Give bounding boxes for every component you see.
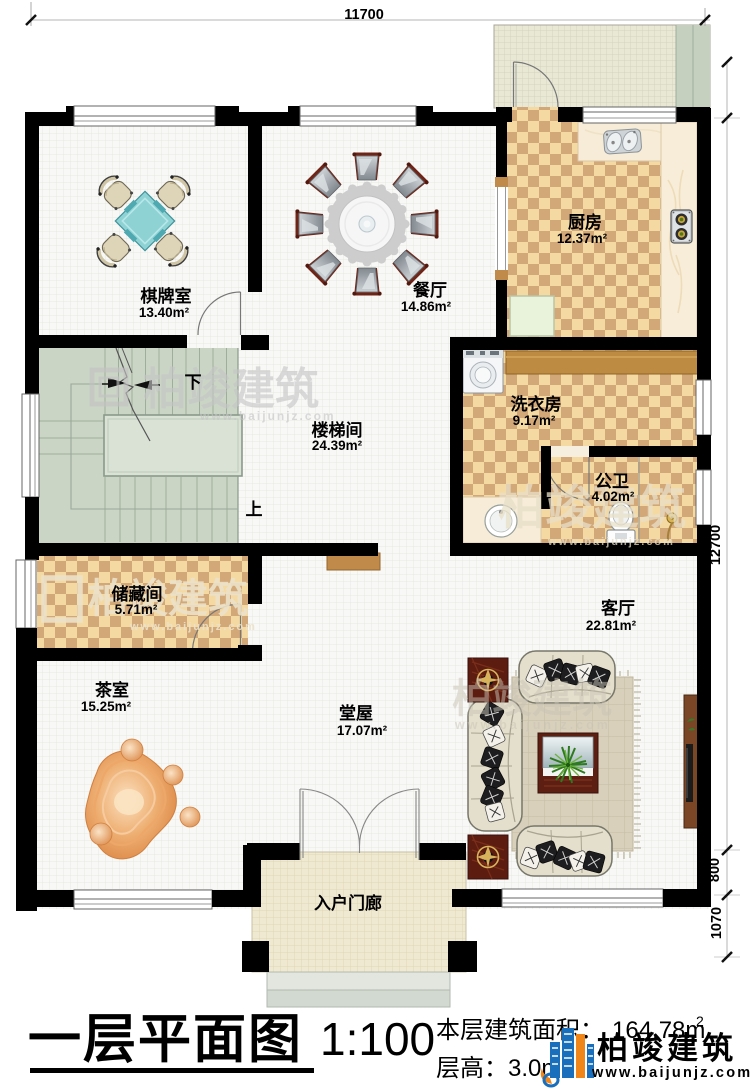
- svg-text:厨房: 厨房: [568, 212, 602, 232]
- svg-text:12700: 12700: [708, 525, 724, 565]
- svg-text:800: 800: [707, 858, 723, 882]
- svg-text:楼梯间: 楼梯间: [312, 420, 363, 440]
- svg-text:茶室: 茶室: [95, 680, 129, 700]
- svg-text:入户门廊: 入户门廊: [314, 893, 382, 913]
- svg-text:5.71m²: 5.71m²: [115, 602, 158, 617]
- svg-text:客厅: 客厅: [600, 598, 635, 618]
- svg-text:柏竣建筑: 柏竣建筑: [597, 1031, 737, 1066]
- svg-text:www.baijunjz.com: www.baijunjz.com: [547, 536, 675, 548]
- svg-text:14.86m²: 14.86m²: [401, 299, 452, 314]
- svg-text:餐厅: 餐厅: [413, 280, 447, 300]
- svg-text:4.02m²: 4.02m²: [592, 489, 635, 504]
- svg-text:11700: 11700: [344, 7, 384, 23]
- svg-text:17.07m²: 17.07m²: [337, 723, 388, 738]
- svg-text:一层平面图: 一层平面图: [28, 1010, 303, 1069]
- svg-text:堂屋: 堂屋: [339, 703, 373, 723]
- svg-text:下: 下: [185, 373, 202, 392]
- svg-text:2: 2: [696, 1013, 704, 1029]
- svg-text:储藏间: 储藏间: [112, 584, 163, 604]
- svg-text:9.17m²: 9.17m²: [513, 413, 556, 428]
- svg-text:棋牌室: 棋牌室: [141, 286, 192, 306]
- svg-text:12.37m²: 12.37m²: [557, 231, 608, 246]
- svg-text:13.40m²: 13.40m²: [139, 305, 190, 320]
- svg-text:22.81m²: 22.81m²: [586, 618, 637, 633]
- svg-text:www.baijunjz.com: www.baijunjz.com: [129, 621, 257, 633]
- svg-text:柏竣建筑: 柏竣建筑: [143, 365, 319, 414]
- svg-text:1:100: 1:100: [320, 1013, 435, 1065]
- svg-text:24.39m²: 24.39m²: [312, 438, 363, 453]
- svg-text:www.baijunjz.com: www.baijunjz.com: [591, 1065, 750, 1081]
- svg-text:洗衣房: 洗衣房: [511, 394, 562, 414]
- svg-text:15.25m²: 15.25m²: [81, 699, 132, 714]
- svg-text:柏竣建筑: 柏竣建筑: [452, 677, 612, 721]
- svg-text:1070: 1070: [709, 907, 725, 939]
- svg-text:www.baijunjz.com: www.baijunjz.com: [454, 718, 611, 732]
- svg-text:上: 上: [246, 500, 263, 519]
